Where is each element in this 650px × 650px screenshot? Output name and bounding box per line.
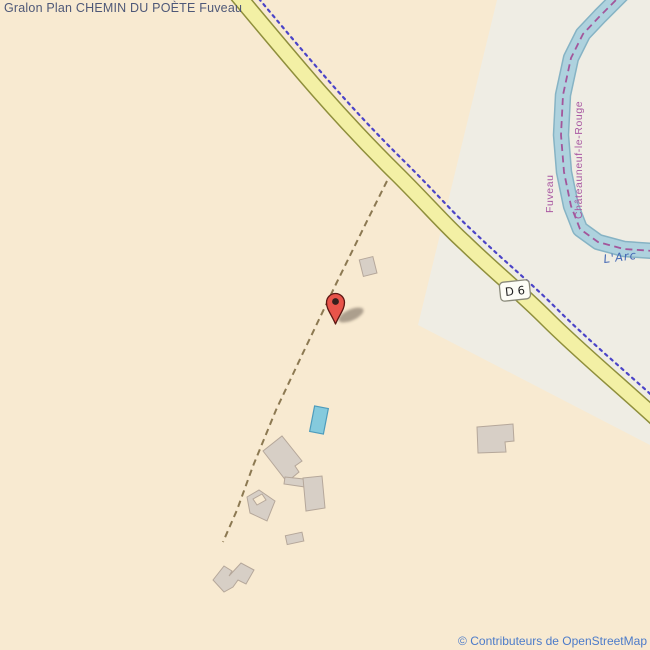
boundary-label-chateauneuf: Châteauneuf-le-Rouge (573, 101, 585, 219)
osm-attribution[interactable]: © Contributeurs de OpenStreetMap (458, 634, 647, 648)
boundary-label-fuveau: Fuveau (544, 174, 556, 213)
map-viewport[interactable]: Gralon Plan CHEMIN DU POÈTE Fuveau (0, 0, 650, 650)
marker-hole (332, 298, 339, 305)
page-title: Gralon Plan CHEMIN DU POÈTE Fuveau (4, 1, 242, 15)
building-annex (303, 476, 325, 511)
road-shield-label: D 6 (504, 283, 525, 299)
map-canvas[interactable]: Fuveau Châteauneuf-le-Rouge L'Arc D 6 (0, 0, 650, 650)
road-shield-d6: D 6 (499, 279, 531, 301)
